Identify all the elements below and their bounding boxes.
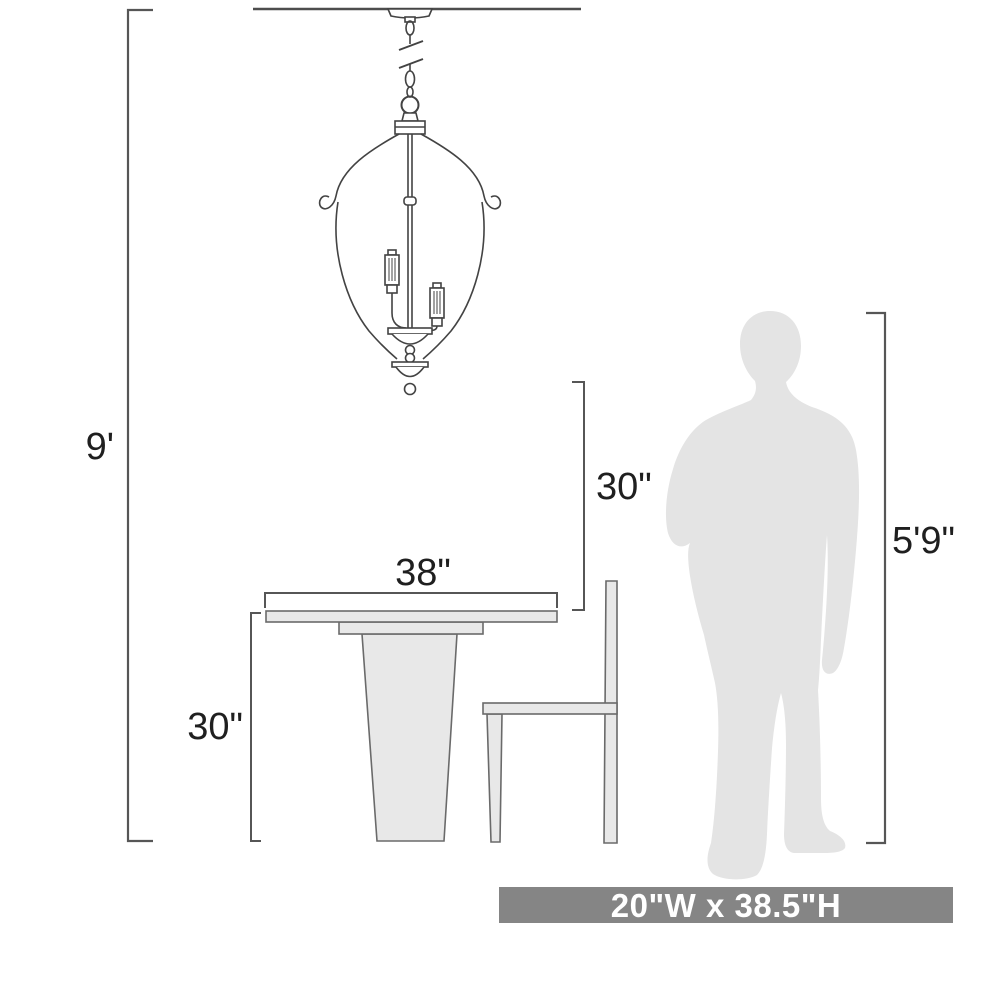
dimension-bracket-30in-clearance	[572, 382, 584, 610]
fixture-size-banner: 20"W x 38.5"H	[499, 887, 953, 923]
chandelier	[320, 9, 501, 395]
clearance-label: 30"	[596, 468, 652, 506]
person-silhouette	[666, 311, 859, 879]
dimension-bracket-30in-table	[251, 613, 261, 841]
table-height-label: 30"	[179, 708, 243, 746]
person-height-label: 5'9"	[892, 522, 955, 560]
chair-front-leg	[487, 714, 502, 842]
diagram-canvas	[0, 0, 1000, 1000]
pedestal-table	[266, 611, 557, 841]
table-top	[266, 611, 557, 622]
ceiling-height-label: 9'	[52, 428, 114, 466]
table-apron	[339, 622, 483, 634]
dimension-bracket-5ft9	[866, 313, 885, 843]
dimension-diagram: 9' 30" 38" 30" 5'9" 20"W x 38.5"H	[0, 0, 1000, 1000]
chair-seat	[483, 703, 617, 714]
dimension-bracket-38in	[265, 593, 557, 608]
table-width-label: 38"	[373, 554, 473, 592]
dimension-bracket-9ft	[128, 10, 153, 841]
table-pedestal	[362, 634, 457, 841]
